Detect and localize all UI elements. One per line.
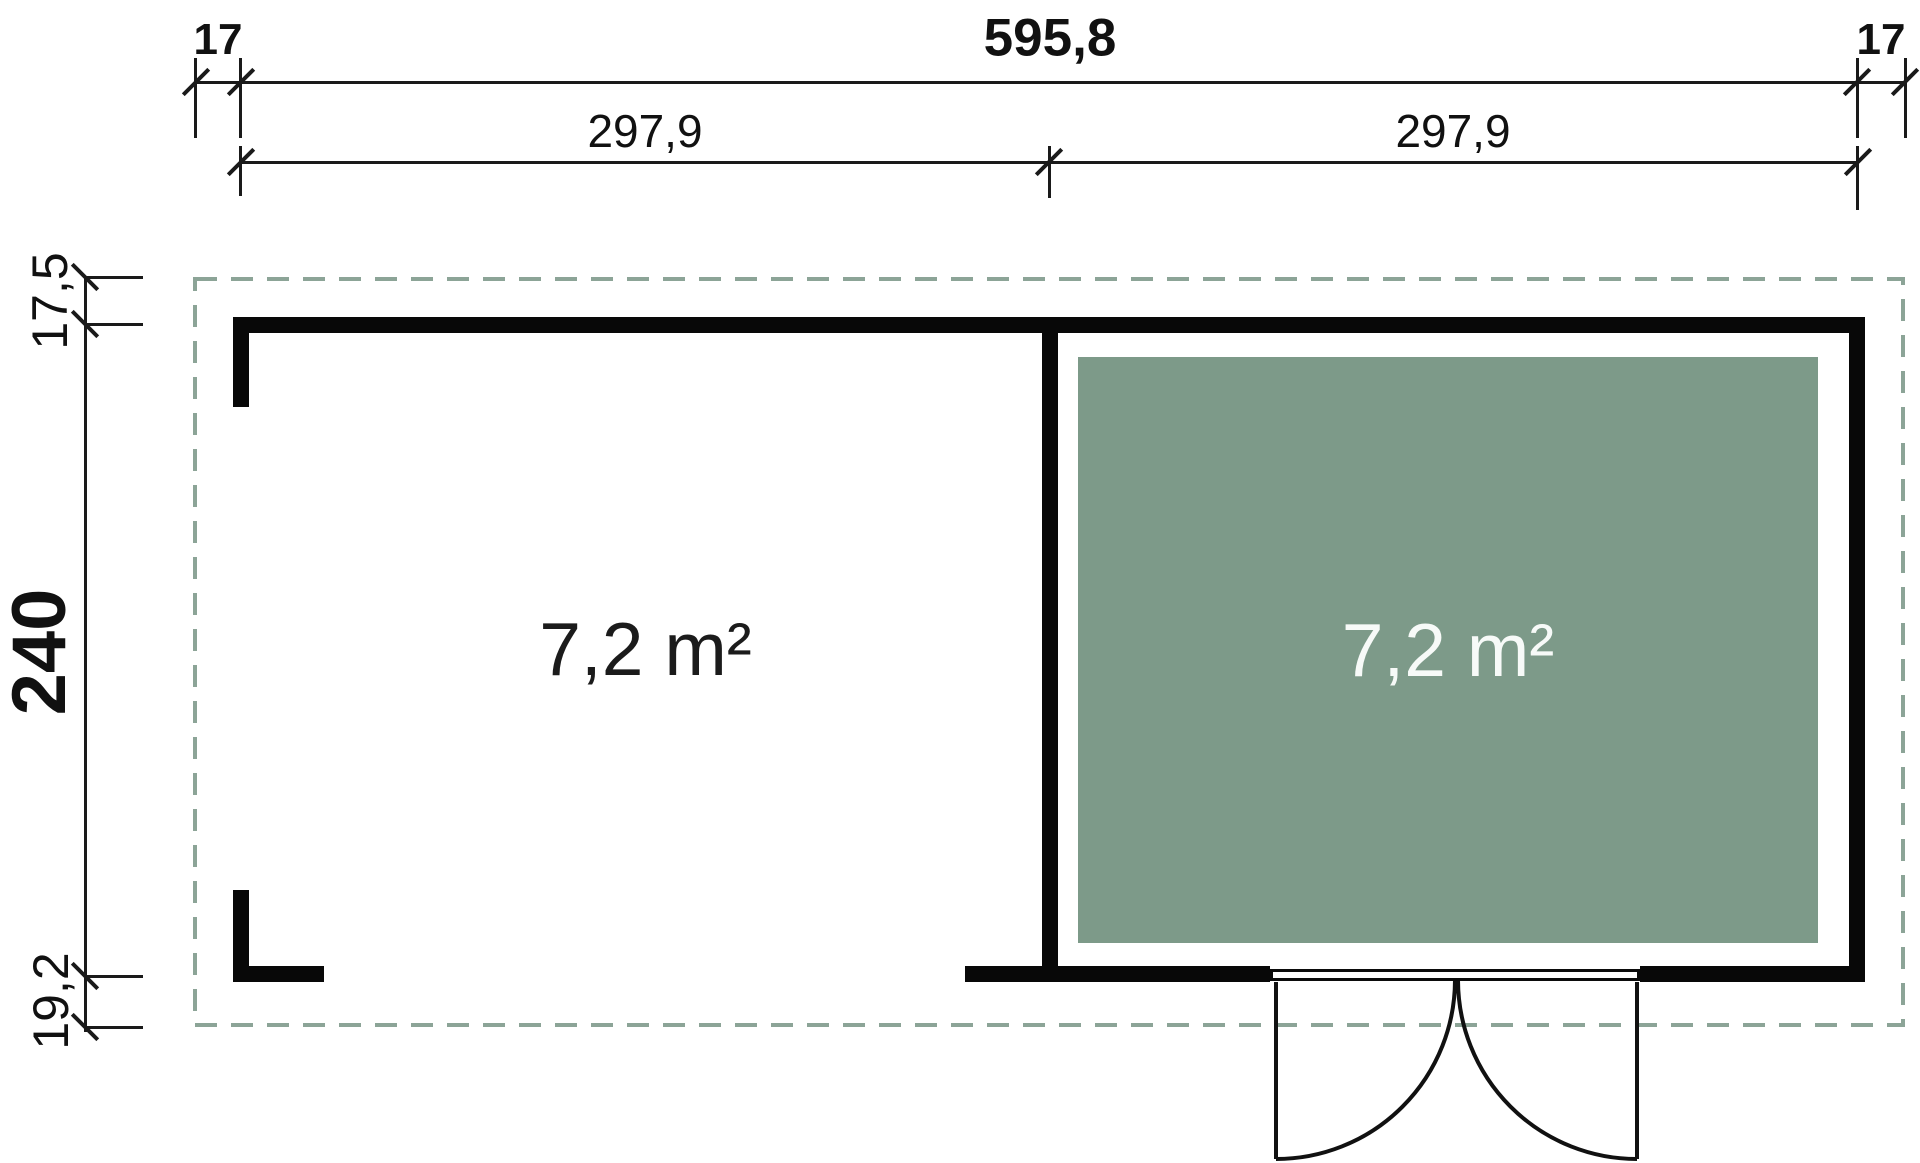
dim-extension-line: [85, 975, 143, 978]
door-threshold: [1270, 969, 1640, 981]
door-swing-arc-left: [1276, 980, 1455, 1159]
wall-right: [1849, 317, 1865, 982]
room-right: 7,2 m²: [1078, 357, 1818, 943]
dim-extension-line: [239, 58, 242, 138]
dim-label-overhang-top: 17,5: [25, 252, 75, 349]
wall-corner-bottom-left-horizontal: [233, 966, 324, 982]
dim-label-section-left: 297,9: [587, 108, 702, 154]
wall-bottom-left-segment: [965, 966, 1270, 982]
room-left-area-label: 7,2 m²: [539, 612, 752, 687]
door-swing-arc-right: [1458, 980, 1637, 1159]
wall-bottom-right-segment: [1640, 966, 1865, 982]
room-right-area-label: 7,2 m²: [1342, 613, 1555, 688]
dim-extension-line: [85, 276, 143, 279]
dim-extension-line: [194, 58, 197, 138]
dim-extension-line: [1856, 146, 1859, 210]
dim-extension-line: [239, 146, 242, 196]
dim-label-total: 595,8: [984, 12, 1117, 65]
dim-label-overhang-left: 17: [194, 18, 243, 62]
dim-label-overhang-bottom: 19,2: [26, 952, 76, 1049]
wall-middle: [1042, 317, 1058, 982]
dim-extension-line: [1904, 58, 1907, 138]
wall-corner-top-left: [233, 317, 249, 407]
dim-line-total: [195, 81, 1905, 84]
dim-extension-line: [1856, 58, 1859, 138]
dim-label-overhang-right: 17: [1857, 18, 1906, 62]
dim-extension-line: [85, 1026, 143, 1029]
dim-label-depth: 240: [2, 589, 78, 716]
dim-extension-line: [1048, 146, 1051, 198]
floor-plan: 7,2 m² 7,2 m² 17 595,8 17 297,9 297,9 17…: [0, 0, 1920, 1163]
room-left: 7,2 m²: [249, 333, 1042, 966]
dim-label-section-right: 297,9: [1395, 108, 1510, 154]
dim-extension-line: [85, 323, 143, 326]
dim-line-vertical: [84, 276, 87, 1032]
